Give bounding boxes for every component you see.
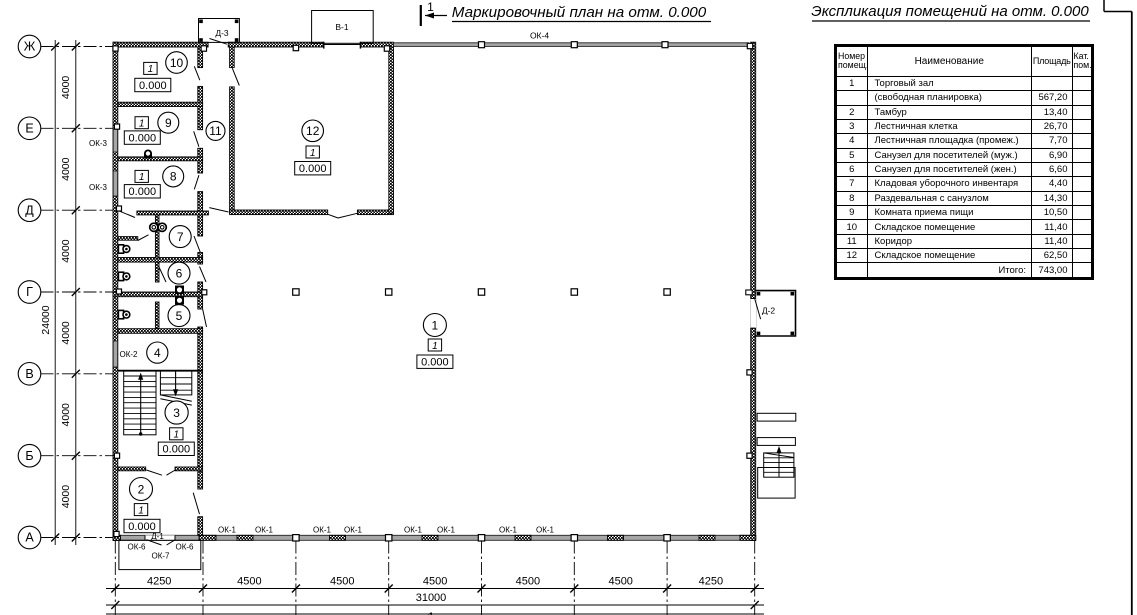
svg-text:12: 12 <box>306 124 320 138</box>
svg-text:0.000: 0.000 <box>163 444 191 456</box>
svg-text:ОК-1: ОК-1 <box>404 525 423 534</box>
svg-text:5: 5 <box>176 309 183 323</box>
svg-text:Ж: Ж <box>24 40 36 54</box>
svg-text:0.000: 0.000 <box>299 163 327 175</box>
svg-text:ОК-1: ОК-1 <box>499 525 518 534</box>
svg-text:2: 2 <box>138 482 145 496</box>
svg-text:0.000: 0.000 <box>128 521 156 533</box>
svg-text:1: 1 <box>432 318 439 332</box>
svg-text:1: 1 <box>148 64 154 75</box>
svg-text:Д-1: Д-1 <box>151 532 164 541</box>
svg-text:ОК-7: ОК-7 <box>152 552 171 561</box>
svg-text:Д-2: Д-2 <box>762 306 776 316</box>
svg-text:4: 4 <box>154 346 161 360</box>
svg-text:4000: 4000 <box>60 157 72 181</box>
svg-text:В: В <box>25 367 33 381</box>
svg-text:4000: 4000 <box>60 321 72 345</box>
svg-text:10: 10 <box>170 56 184 70</box>
svg-text:1: 1 <box>432 341 438 352</box>
svg-text:4250: 4250 <box>699 576 723 588</box>
svg-text:ОК-3: ОК-3 <box>89 139 108 148</box>
svg-text:Д-3: Д-3 <box>215 28 229 38</box>
svg-text:0.000: 0.000 <box>129 133 157 145</box>
svg-text:ОК-1: ОК-1 <box>344 525 363 534</box>
svg-text:1: 1 <box>174 430 180 441</box>
svg-text:8: 8 <box>170 170 177 184</box>
svg-text:1: 1 <box>139 172 145 183</box>
svg-text:ОК-1: ОК-1 <box>255 525 274 534</box>
svg-text:ОК-6: ОК-6 <box>176 543 195 552</box>
svg-text:ОК-1: ОК-1 <box>437 525 456 534</box>
svg-text:24000: 24000 <box>40 305 52 334</box>
svg-text:3: 3 <box>173 406 180 420</box>
svg-text:1: 1 <box>427 0 434 14</box>
svg-text:ОК-6: ОК-6 <box>128 543 147 552</box>
svg-text:0.000: 0.000 <box>421 357 449 369</box>
svg-text:4500: 4500 <box>330 576 354 588</box>
svg-text:7: 7 <box>177 230 184 244</box>
svg-text:0.000: 0.000 <box>139 80 167 92</box>
svg-text:4250: 4250 <box>147 576 171 588</box>
svg-text:ОК-1: ОК-1 <box>536 525 555 534</box>
svg-text:4500: 4500 <box>608 576 632 588</box>
svg-text:6: 6 <box>176 266 183 280</box>
svg-text:31000: 31000 <box>416 592 447 604</box>
svg-text:Д: Д <box>25 203 34 217</box>
svg-text:Е: Е <box>25 122 33 136</box>
svg-text:0.000: 0.000 <box>129 186 157 198</box>
svg-text:ОК-1: ОК-1 <box>313 525 332 534</box>
svg-text:4500: 4500 <box>516 576 540 588</box>
svg-text:11: 11 <box>209 124 222 138</box>
svg-text:4000: 4000 <box>60 239 72 263</box>
svg-text:Г: Г <box>26 285 33 299</box>
svg-text:Экспликация помещений на отм.: Экспликация помещений на отм. 0.000 <box>811 3 1089 20</box>
svg-text:4000: 4000 <box>60 485 72 509</box>
svg-text:ОК-2: ОК-2 <box>120 350 139 359</box>
svg-text:4500: 4500 <box>423 576 447 588</box>
svg-text:Маркировочный план на отм. 0.0: Маркировочный план на отм. 0.000 <box>452 4 707 21</box>
svg-text:9: 9 <box>165 116 172 130</box>
svg-text:1: 1 <box>139 119 145 130</box>
svg-text:В-1: В-1 <box>335 22 349 32</box>
svg-text:4500: 4500 <box>237 576 261 588</box>
svg-text:ОК-1: ОК-1 <box>218 525 237 534</box>
svg-text:ОК-4: ОК-4 <box>530 31 549 41</box>
svg-text:4000: 4000 <box>60 76 72 100</box>
svg-text:1: 1 <box>310 148 316 159</box>
svg-text:4000: 4000 <box>60 403 72 427</box>
svg-text:А: А <box>25 531 34 545</box>
svg-text:Б: Б <box>25 449 33 463</box>
svg-text:1: 1 <box>138 505 144 516</box>
svg-text:ОК-3: ОК-3 <box>89 183 108 192</box>
